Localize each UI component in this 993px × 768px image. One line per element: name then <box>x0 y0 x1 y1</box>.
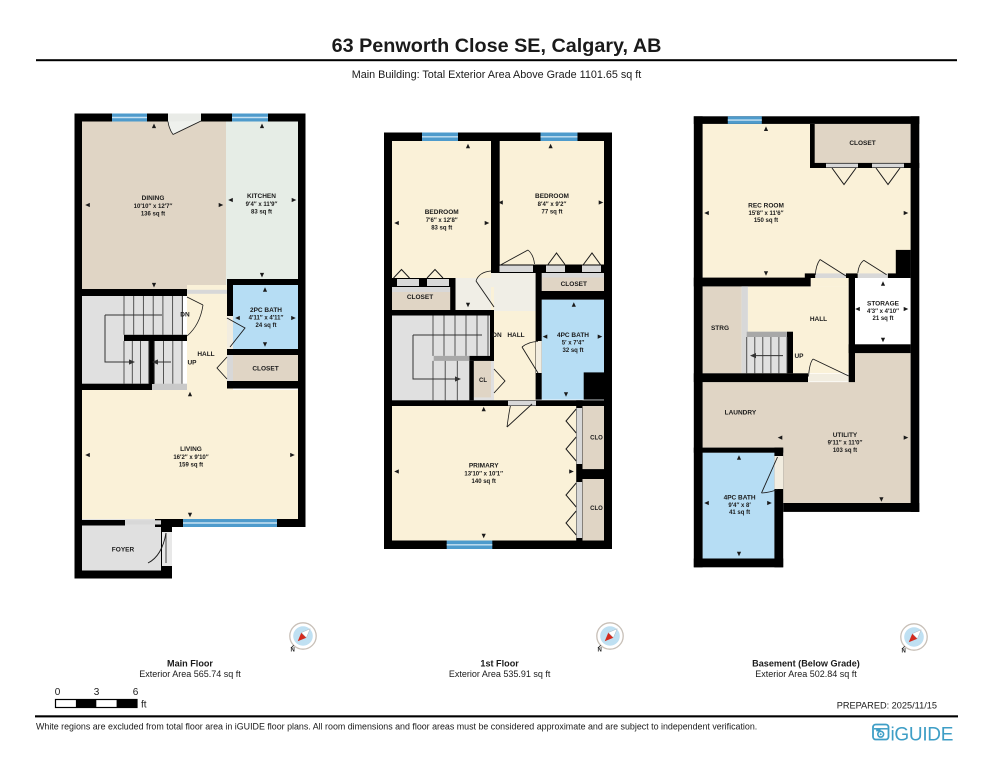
svg-text:63 Penworth Close SE, Calgary,: 63 Penworth Close SE, Calgary, AB <box>332 35 662 57</box>
svg-text:8′4″ x 9′2″: 8′4″ x 9′2″ <box>538 202 567 208</box>
svg-text:PRIMARY: PRIMARY <box>469 463 499 470</box>
svg-text:CLOSET: CLOSET <box>407 294 433 301</box>
svg-text:Exterior Area 502.84 sq ft: Exterior Area 502.84 sq ft <box>755 669 857 679</box>
svg-text:LIVING: LIVING <box>180 446 202 453</box>
svg-text:10′10″ x 12′7″: 10′10″ x 12′7″ <box>134 204 173 210</box>
svg-text:4′3″ x 4′10″: 4′3″ x 4′10″ <box>867 309 899 315</box>
svg-text:Main Building: Total Exterior: Main Building: Total Exterior Area Above… <box>352 69 642 81</box>
svg-text:BEDROOM: BEDROOM <box>425 209 459 216</box>
svg-text:2PC BATH: 2PC BATH <box>250 307 282 314</box>
svg-text:77 sq ft: 77 sq ft <box>541 210 562 216</box>
svg-text:4PC BATH: 4PC BATH <box>724 495 756 502</box>
svg-text:White regions are excluded fro: White regions are excluded from total fl… <box>36 722 757 732</box>
svg-text:4PC BATH: 4PC BATH <box>557 332 589 339</box>
svg-text:UP: UP <box>794 353 804 360</box>
svg-text:STORAGE: STORAGE <box>867 301 900 308</box>
svg-text:N: N <box>598 648 602 654</box>
svg-text:LAUNDRY: LAUNDRY <box>725 410 757 417</box>
svg-text:13′10″ x 10′1″: 13′10″ x 10′1″ <box>464 472 503 478</box>
svg-text:9′4″ x 8′: 9′4″ x 8′ <box>728 503 751 509</box>
svg-text:9′4″ x 11′9″: 9′4″ x 11′9″ <box>246 202 278 208</box>
svg-text:DN: DN <box>180 312 190 319</box>
svg-text:Exterior Area 565.74 sq ft: Exterior Area 565.74 sq ft <box>139 669 241 679</box>
svg-text:Basement (Below Grade): Basement (Below Grade) <box>752 659 860 669</box>
svg-text:ft: ft <box>141 700 147 711</box>
svg-text:6: 6 <box>133 687 139 698</box>
svg-text:32 sq ft: 32 sq ft <box>562 348 583 354</box>
svg-text:Exterior Area 535.91 sq ft: Exterior Area 535.91 sq ft <box>449 669 551 679</box>
svg-text:BEDROOM: BEDROOM <box>535 193 569 200</box>
svg-text:N: N <box>291 648 295 654</box>
svg-text:N: N <box>902 649 906 655</box>
svg-text:7′6″ x 12′8″: 7′6″ x 12′8″ <box>426 218 458 224</box>
svg-text:UTILITY: UTILITY <box>833 432 858 439</box>
svg-text:3: 3 <box>94 687 100 698</box>
svg-text:CLOSET: CLOSET <box>849 140 875 147</box>
svg-text:9′11″ x 11′0″: 9′11″ x 11′0″ <box>828 441 863 447</box>
svg-text:5′ x 7′4″: 5′ x 7′4″ <box>562 341 585 347</box>
svg-text:103 sq ft: 103 sq ft <box>833 448 857 454</box>
svg-text:41 sq ft: 41 sq ft <box>729 510 750 516</box>
svg-text:FOYER: FOYER <box>112 547 135 554</box>
svg-text:CLO: CLO <box>590 436 603 442</box>
svg-text:iGUIDE: iGUIDE <box>891 725 954 746</box>
svg-text:16′2″ x 9′10″: 16′2″ x 9′10″ <box>173 455 208 461</box>
svg-text:CL: CL <box>479 378 487 384</box>
svg-text:HALL: HALL <box>810 316 827 323</box>
svg-text:83 sq ft: 83 sq ft <box>251 210 272 216</box>
svg-text:1st Floor: 1st Floor <box>480 659 519 669</box>
svg-text:Main Floor: Main Floor <box>167 659 213 669</box>
svg-text:CLO: CLO <box>590 506 603 512</box>
svg-text:DN: DN <box>492 332 502 339</box>
svg-text:CLOSET: CLOSET <box>252 366 278 373</box>
svg-text:HALL: HALL <box>507 332 524 339</box>
svg-text:21 sq ft: 21 sq ft <box>872 316 893 322</box>
svg-text:136 sq ft: 136 sq ft <box>141 212 165 218</box>
svg-text:STRG: STRG <box>711 325 729 332</box>
svg-text:0: 0 <box>55 687 61 698</box>
svg-text:REC ROOM: REC ROOM <box>748 203 784 210</box>
svg-text:4′11″ x 4′11″: 4′11″ x 4′11″ <box>249 316 284 322</box>
svg-text:UP: UP <box>187 360 197 367</box>
svg-text:140 sq ft: 140 sq ft <box>472 479 496 485</box>
svg-text:HALL: HALL <box>197 351 214 358</box>
svg-text:24 sq ft: 24 sq ft <box>255 323 276 329</box>
svg-text:150 sq ft: 150 sq ft <box>754 218 778 224</box>
svg-text:15′8″ x 11′6″: 15′8″ x 11′6″ <box>749 211 784 217</box>
svg-text:159 sq ft: 159 sq ft <box>179 463 203 469</box>
svg-text:CLOSET: CLOSET <box>561 281 587 288</box>
svg-text:KITCHEN: KITCHEN <box>247 193 276 200</box>
svg-text:DINING: DINING <box>142 195 165 202</box>
svg-text:83 sq ft: 83 sq ft <box>431 226 452 232</box>
svg-text:PREPARED: 2025/11/15: PREPARED: 2025/11/15 <box>837 701 937 711</box>
